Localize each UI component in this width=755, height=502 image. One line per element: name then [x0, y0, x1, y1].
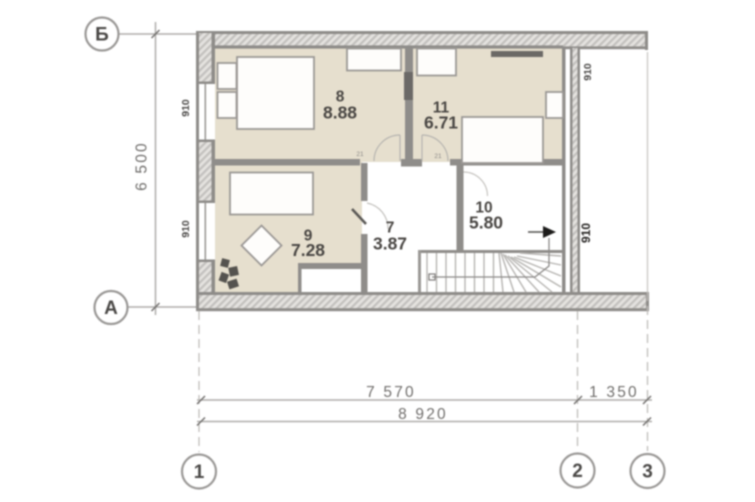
svg-text:6 500: 6 500: [134, 141, 151, 191]
svg-text:910: 910: [180, 220, 192, 238]
svg-text:8.88: 8.88: [323, 103, 357, 123]
svg-text:3.87: 3.87: [373, 234, 407, 254]
svg-text:Б: Б: [95, 25, 109, 46]
svg-text:6.71: 6.71: [424, 113, 458, 133]
svg-text:1 350: 1 350: [589, 384, 639, 401]
svg-text:2: 2: [572, 461, 583, 482]
svg-text:3: 3: [642, 462, 653, 483]
svg-text:21: 21: [434, 153, 442, 160]
svg-text:21: 21: [356, 151, 364, 158]
svg-text:910: 910: [579, 223, 593, 243]
svg-text:А: А: [104, 298, 118, 319]
svg-text:1: 1: [194, 462, 205, 483]
svg-text:910: 910: [180, 99, 192, 117]
svg-text:8 920: 8 920: [398, 406, 448, 423]
svg-text:5.80: 5.80: [469, 213, 503, 233]
svg-text:7.28: 7.28: [291, 240, 325, 260]
svg-text:7 570: 7 570: [366, 384, 416, 401]
svg-text:910: 910: [582, 63, 594, 81]
